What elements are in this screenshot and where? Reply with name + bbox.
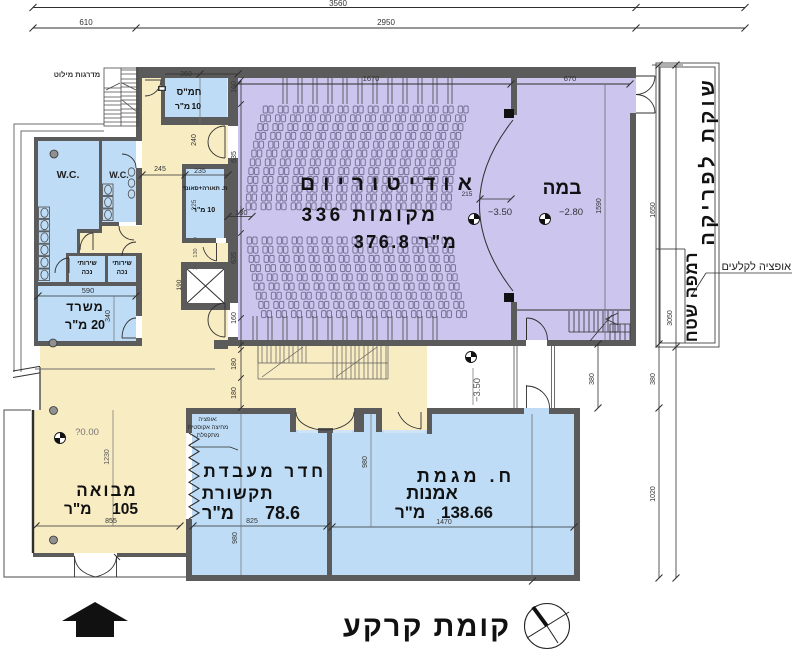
svg-text:מ"ר: מ"ר: [202, 503, 234, 523]
svg-text:130: 130: [193, 248, 199, 257]
svg-text:ת. תאורה+סאונד: ת. תאורה+סאונד: [183, 186, 228, 192]
svg-text:340: 340: [105, 310, 112, 322]
svg-text:3050: 3050: [667, 310, 674, 326]
svg-text:מ"ר: מ"ר: [64, 501, 92, 518]
svg-text:מבואה: מבואה: [76, 481, 137, 500]
svg-text:635: 635: [231, 252, 238, 264]
svg-text:W.C.: W.C.: [109, 170, 129, 180]
svg-text:10 מ"ר: 10 מ"ר: [193, 207, 215, 214]
svg-text:1230: 1230: [104, 449, 111, 465]
svg-text:360: 360: [180, 71, 192, 78]
svg-text:1670: 1670: [363, 74, 380, 83]
svg-text:אמנות: אמנות: [406, 483, 457, 503]
svg-text:635: 635: [231, 151, 238, 163]
svg-text:מדרגות מילוט: מדרגות מילוט: [54, 70, 101, 79]
svg-text:מ"ר 376.8: מ"ר 376.8: [354, 232, 459, 252]
svg-text:מ"ר: מ"ר: [65, 318, 87, 332]
svg-text:610: 610: [79, 18, 93, 27]
svg-text:670: 670: [564, 74, 577, 83]
svg-text:מקומות 336: מקומות 336: [302, 205, 439, 226]
svg-text:180: 180: [231, 387, 238, 399]
svg-text:רמפה שטח: רמפה שטח: [682, 252, 701, 342]
svg-text:20: 20: [193, 264, 199, 270]
svg-text:190: 190: [176, 279, 183, 290]
svg-text:235: 235: [194, 168, 206, 175]
svg-text:3560: 3560: [329, 0, 347, 8]
svg-text:245: 245: [154, 166, 166, 173]
svg-text:במה: במה: [543, 178, 582, 199]
svg-text:105: 105: [112, 501, 138, 518]
svg-text:קומת קרקע: קומת קרקע: [343, 611, 511, 643]
svg-text:תקשורת: תקשורת: [202, 484, 274, 503]
svg-text:?0.00: ?0.00: [75, 427, 99, 438]
svg-text:מ"ר: מ"ר: [395, 503, 425, 522]
svg-text:מתקפלת: מתקפלת: [197, 431, 220, 439]
svg-text:נכה: נכה: [82, 269, 93, 276]
svg-text:380: 380: [589, 373, 596, 385]
svg-text:−3.50: −3.50: [472, 378, 483, 402]
svg-text:20: 20: [193, 237, 199, 243]
svg-text:240: 240: [191, 134, 198, 146]
svg-text:−3.50: −3.50: [488, 207, 512, 218]
svg-text:חמ"ס: חמ"ס: [177, 87, 202, 98]
svg-text:78.6: 78.6: [265, 503, 300, 523]
svg-text:משרד: משרד: [66, 300, 104, 314]
svg-text:2950: 2950: [377, 18, 395, 27]
svg-text:מחיצה אקוסטית: מחיצה אקוסטית: [188, 425, 229, 431]
svg-text:1590: 1590: [596, 198, 603, 214]
svg-text:שירותי: שירותי: [77, 260, 97, 267]
svg-text:אופציה לקלעים: אופציה לקלעים: [721, 260, 791, 273]
svg-text:138.66: 138.66: [441, 503, 493, 522]
svg-text:מ"ר: מ"ר: [175, 101, 190, 111]
svg-text:825: 825: [246, 518, 258, 525]
svg-text:20: 20: [91, 318, 105, 332]
svg-text:10: 10: [192, 101, 202, 111]
svg-text:855: 855: [105, 518, 117, 525]
svg-text:180: 180: [231, 358, 238, 370]
svg-text:1650: 1650: [650, 202, 657, 218]
svg-text:שוקת לפריקה: שוקת לפריקה: [697, 76, 719, 246]
svg-text:980: 980: [232, 532, 239, 544]
svg-text:W.C.: W.C.: [57, 169, 80, 181]
svg-text:160: 160: [231, 81, 238, 93]
svg-text:שירותי: שירותי: [112, 260, 132, 267]
svg-text:אודיטוריום: אודיטוריום: [300, 172, 480, 195]
svg-text:130: 130: [235, 208, 248, 217]
svg-text:נכה: נכה: [117, 269, 128, 276]
svg-text:980: 980: [362, 456, 369, 468]
svg-text:−2.80: −2.80: [559, 207, 583, 218]
svg-text::אופציה: :אופציה: [198, 417, 217, 423]
svg-text:1020: 1020: [650, 486, 657, 502]
svg-text:חדר מעבדת: חדר מעבדת: [204, 462, 327, 481]
svg-text:160: 160: [231, 312, 238, 324]
svg-text:380: 380: [650, 373, 657, 385]
svg-text:590: 590: [82, 286, 95, 295]
